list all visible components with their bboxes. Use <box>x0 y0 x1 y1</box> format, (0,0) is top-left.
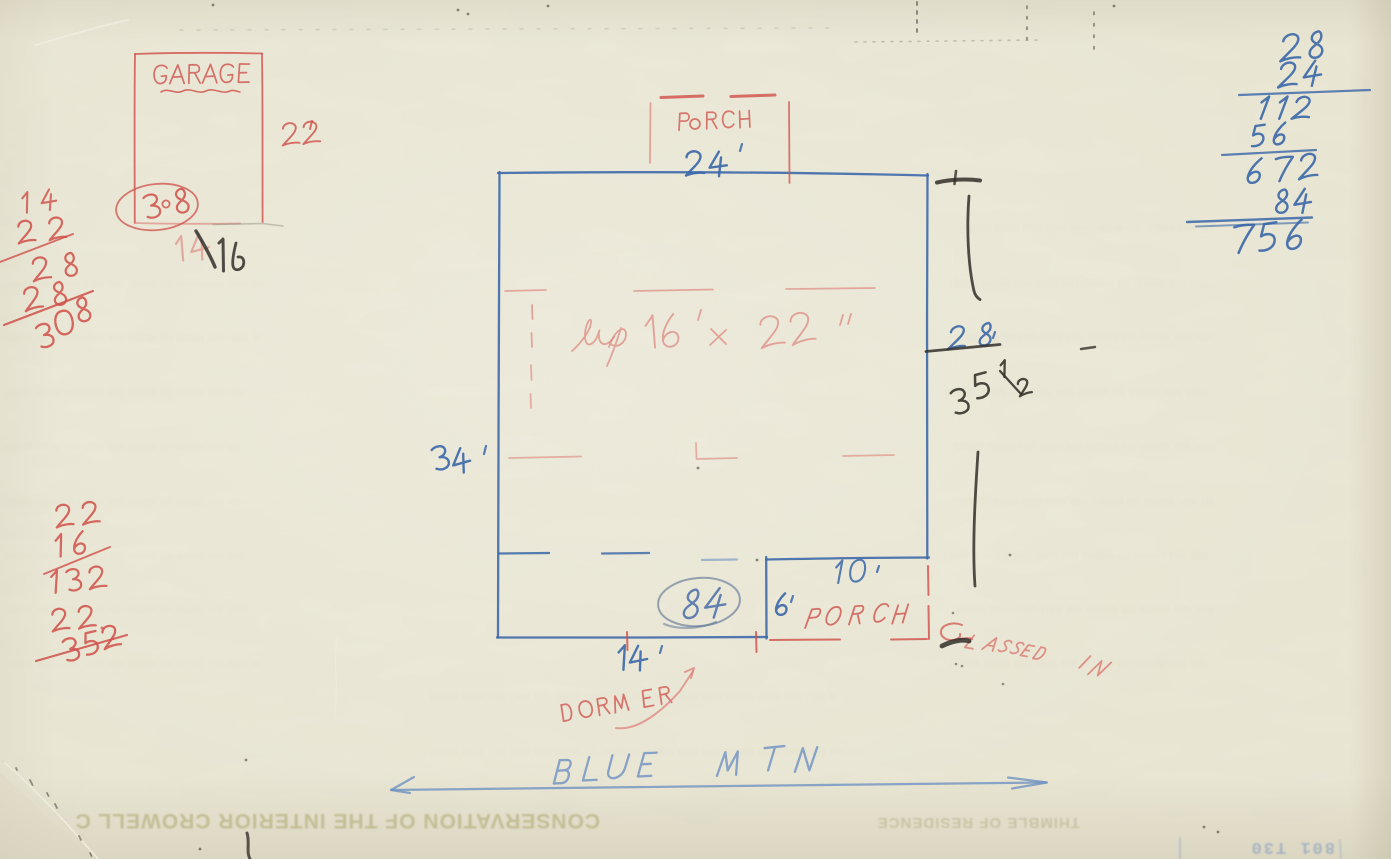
svg-text:CONSERVATION OF THE INTERIOR C: CONSERVATION OF THE INTERIOR CROWELL C <box>75 809 600 832</box>
svg-text:IIHIII HIIH IHI IIHI HII IHIIH: IIHIII HIIH IHI IIHI HII IHIIH III HIIHI… <box>955 442 1214 453</box>
svg-text:IIHIII HIIH IHI IIHI HII IHIIH: IIHIII HIIH IHI IIHI HII IHIIH III HIIHI… <box>5 279 265 289</box>
svg-text:IIHIII HIIH IHI IIHI HII IHIIH: IIHIII HIIH IHI IIHI HII IHIIH III HIIHI… <box>430 692 838 702</box>
svg-text:IIHIII HIIH IHI IIHI HII IHIIH: IIHIII HIIH IHI IIHI HII IHIIH III HIIHI… <box>5 605 249 615</box>
svg-text:801 T30: 801 T30 <box>1250 837 1335 856</box>
svg-text:IIHIII HIIH IHI IIHI HII IHIIH: IIHIII HIIH IHI IIHI HII IHIIH III HIIHI… <box>5 551 245 561</box>
svg-text:IIHIII HIIH IHI IIHI HII IHIIH: IIHIII HIIH IHI IIHI HII IHIIH III HIIHI… <box>955 605 1214 616</box>
svg-text:THIMBLE OF RESIDENCE: THIMBLE OF RESIDENCE <box>877 814 1080 831</box>
svg-text:IIHIII HIIH IHI IIHI HII IHIIH: IIHIII HIIH IHI IIHI HII IHIIH III HIIHI… <box>960 497 1214 508</box>
svg-text:IIHIII HIIH IHI IIHI HII IHIIH: IIHIII HIIH IHI IIHI HII IHIIH III HIIHI… <box>950 551 1209 562</box>
svg-text:IIHIII HIIH IHI IIHI HII IHIIH: IIHIII HIIH IHI IIHI HII IHIIH III HIIHI… <box>5 497 245 507</box>
svg-text:IIHIII HIIH IHI IIHI HII IHIIH: IIHIII HIIH IHI IIHI HII IHIIH III HIIHI… <box>5 442 241 452</box>
svg-text:IIHIII HIIH IHI IIHI HII IHIIH: IIHIII HIIH IHI IIHI HII IHIIH III HIIHI… <box>5 388 245 398</box>
svg-text:IIHIII HIIH IHI IIHI HII IHIIH: IIHIII HIIH IHI IIHI HII IHIIH III HIIHI… <box>5 659 261 669</box>
svg-text:IIHIII HIIH IHI IIHI HII IHIIH: IIHIII HIIH IHI IIHI HII IHIIH III HIIHI… <box>950 279 1209 290</box>
svg-text:IIHIII HIIH IHI IIHI HII IHIIH: IIHIII HIIH IHI IIHI HII IHIIH III HIIHI… <box>960 224 1214 235</box>
